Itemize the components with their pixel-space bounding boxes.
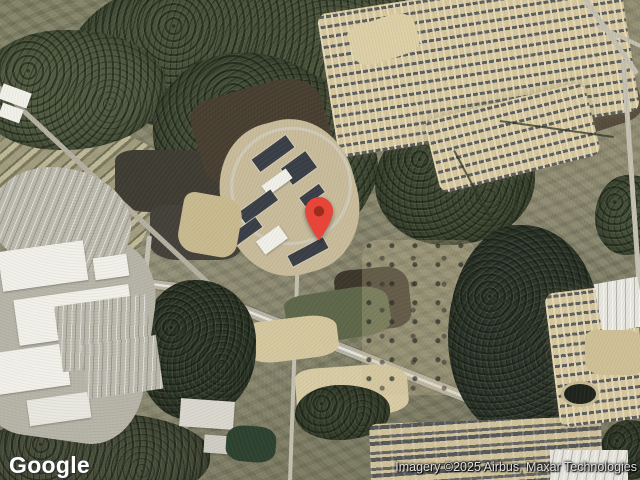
- dirt-patch: [175, 190, 245, 260]
- dirt-patch: [585, 330, 640, 375]
- satellite-map-canvas[interactable]: Google Imagery ©2025 Airbus, Maxar Techn…: [0, 0, 640, 480]
- imagery-attribution: Imagery ©2025 Airbus, Maxar Technologies: [395, 460, 637, 474]
- location-pin-dot: [314, 206, 324, 216]
- pond: [561, 381, 599, 407]
- location-pin[interactable]: [305, 197, 333, 242]
- parking-lot: [81, 335, 164, 399]
- industrial-building: [93, 254, 130, 281]
- industrial-building: [179, 398, 235, 430]
- sports-field: [225, 424, 277, 463]
- location-pin-body: [305, 197, 333, 241]
- warehouse-building: [594, 277, 640, 334]
- google-logo[interactable]: Google: [9, 452, 90, 479]
